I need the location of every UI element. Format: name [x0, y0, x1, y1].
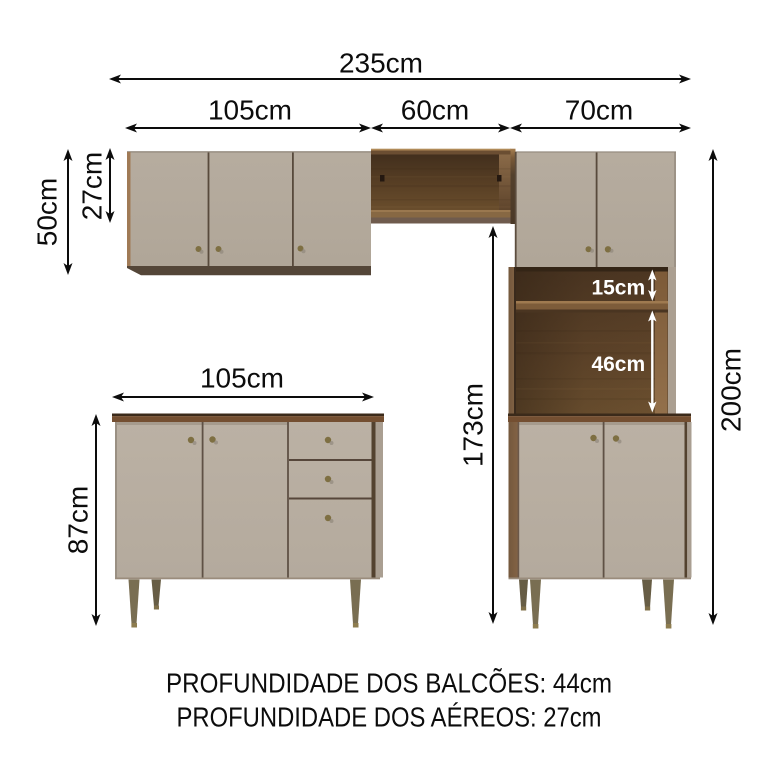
svg-text:70cm: 70cm	[565, 95, 633, 126]
svg-text:105cm: 105cm	[200, 363, 284, 394]
svg-text:46cm: 46cm	[591, 353, 645, 376]
svg-text:PROFUNDIDADE DOS AÉREOS: 27cm: PROFUNDIDADE DOS AÉREOS: 27cm	[177, 702, 602, 733]
svg-text:87cm: 87cm	[63, 486, 94, 554]
svg-text:235cm: 235cm	[339, 48, 423, 79]
svg-text:PROFUNDIDADE DOS BALCÕES: 44cm: PROFUNDIDADE DOS BALCÕES: 44cm	[166, 668, 612, 699]
svg-text:27cm: 27cm	[77, 152, 108, 220]
svg-text:15cm: 15cm	[591, 277, 645, 300]
svg-text:200cm: 200cm	[716, 348, 747, 432]
svg-text:105cm: 105cm	[208, 95, 292, 126]
svg-text:173cm: 173cm	[458, 383, 489, 467]
svg-text:60cm: 60cm	[401, 95, 469, 126]
svg-text:50cm: 50cm	[32, 178, 63, 246]
